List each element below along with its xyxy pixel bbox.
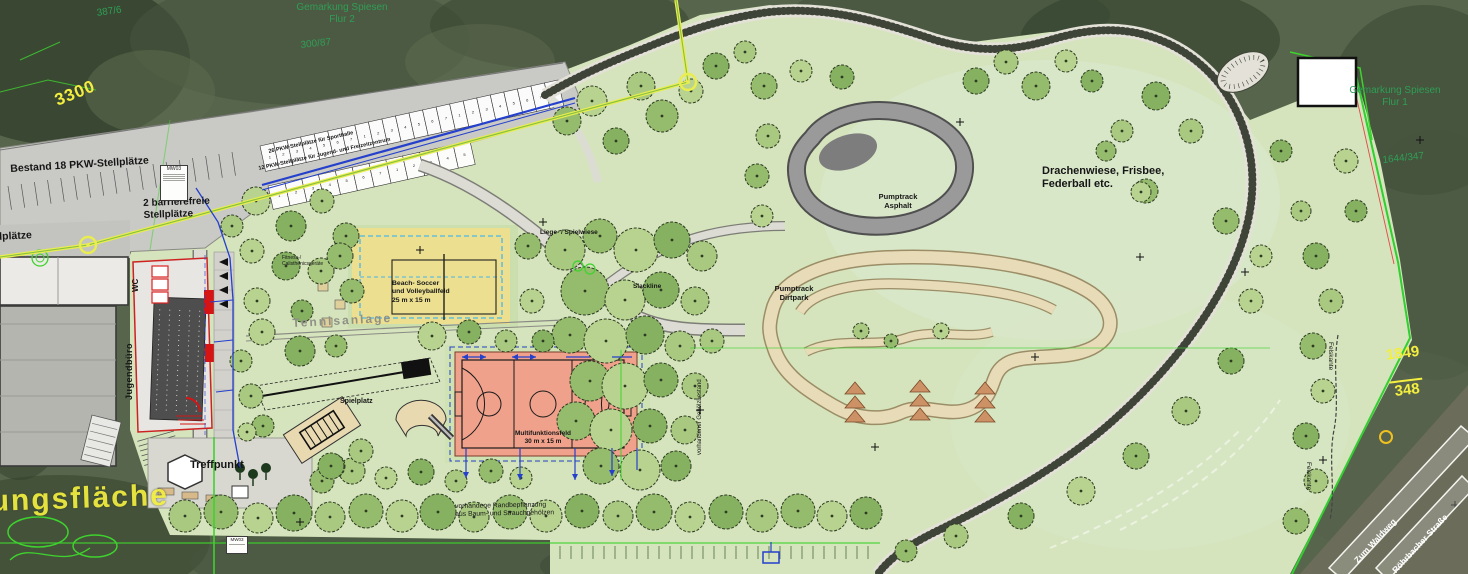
- existing-building: [0, 257, 128, 467]
- white-building: [1298, 58, 1356, 106]
- site-plan-drawing: 1234567123456712345671123456712345: [0, 0, 1468, 574]
- site-plan-canvas: 1234567123456712345671123456712345: [0, 0, 1468, 574]
- hexagon-meeting-point: [168, 455, 202, 489]
